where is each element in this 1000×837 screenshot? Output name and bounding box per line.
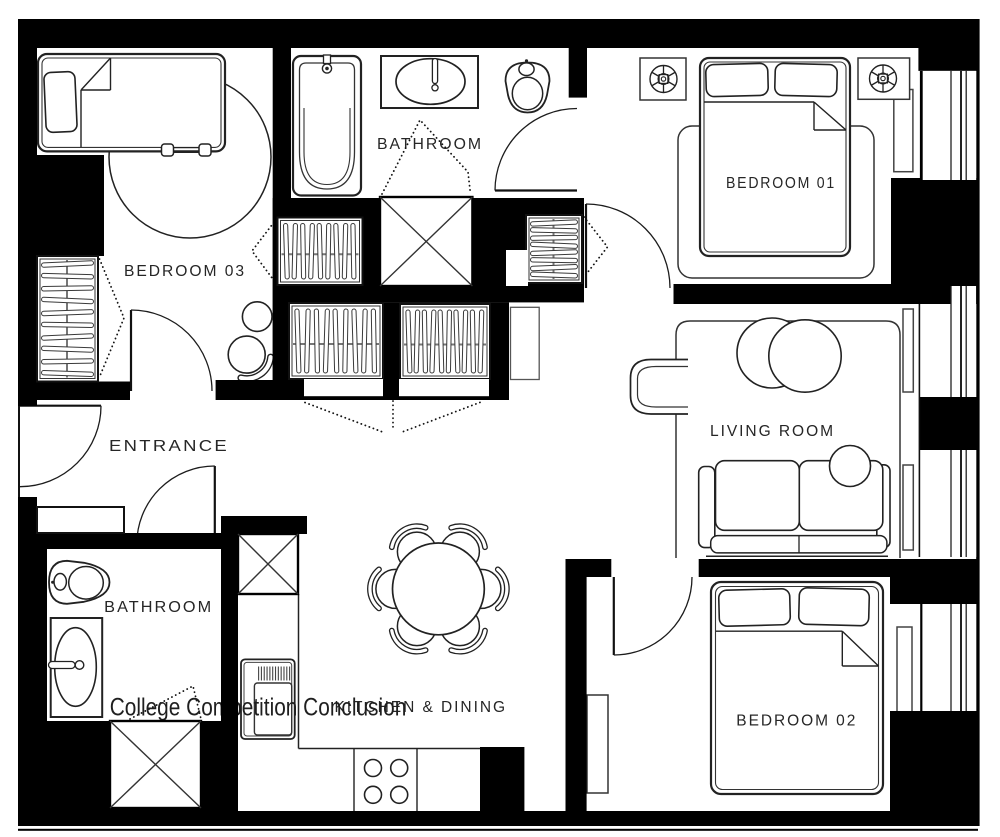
svg-text:College Competition Conclusion: College Competition Conclusion bbox=[110, 694, 407, 722]
svg-text:LIVING ROOM: LIVING ROOM bbox=[710, 423, 835, 440]
svg-text:BEDROOM 02: BEDROOM 02 bbox=[736, 712, 857, 729]
svg-text:BEDROOM 01: BEDROOM 01 bbox=[726, 175, 836, 192]
svg-text:BATHROOM: BATHROOM bbox=[377, 136, 483, 153]
svg-text:BATHROOM: BATHROOM bbox=[104, 599, 213, 616]
svg-text:ENTRANCE: ENTRANCE bbox=[109, 438, 229, 455]
svg-text:BEDROOM 03: BEDROOM 03 bbox=[124, 263, 246, 280]
